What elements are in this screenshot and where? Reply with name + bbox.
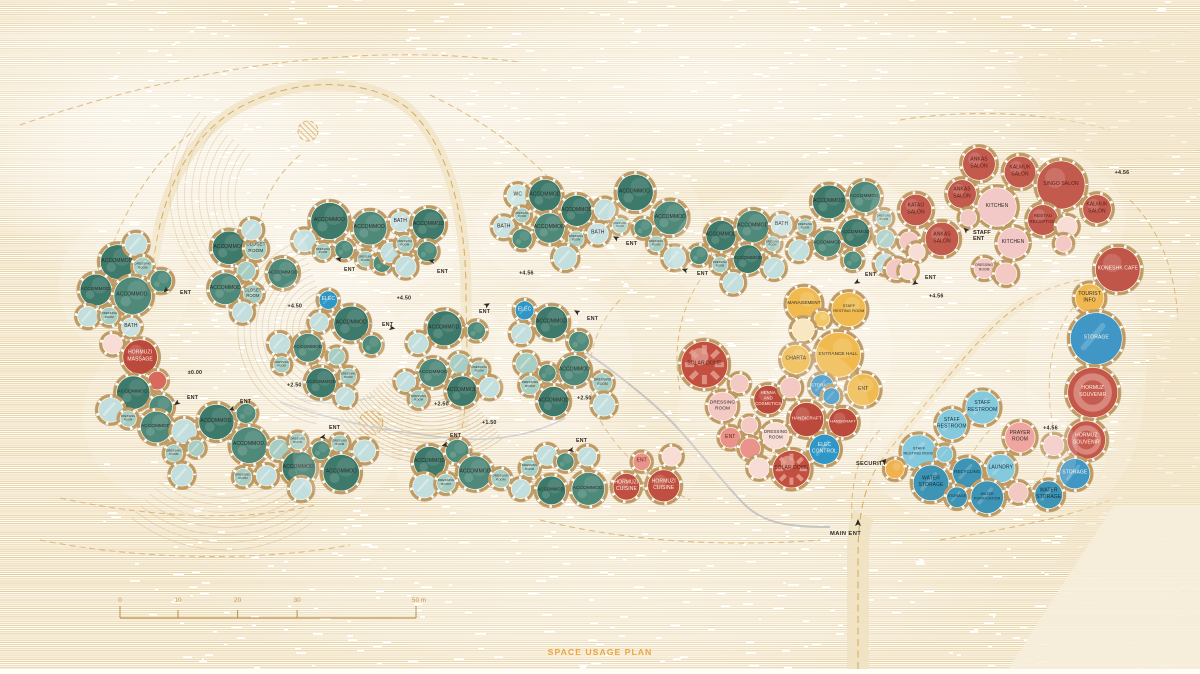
svg-text:HORMUZICUISINE: HORMUZICUISINE — [652, 479, 676, 492]
svg-text:ENT: ENT — [865, 272, 877, 278]
svg-text:SINGO SALON: SINGO SALON — [1043, 181, 1079, 187]
svg-text:PRAYERROOM: PRAYERROOM — [1010, 430, 1031, 443]
svg-text:SOLAR DOME: SOLAR DOME — [774, 465, 809, 471]
svg-text:KITCHEN: KITCHEN — [986, 203, 1009, 209]
svg-text:BATH: BATH — [497, 223, 511, 229]
svg-text:ENT: ENT — [626, 241, 638, 247]
svg-text:KITCHEN: KITCHEN — [1002, 239, 1025, 245]
svg-text:HANDICRAFT: HANDICRAFT — [792, 415, 822, 420]
svg-text:ENT: ENT — [437, 269, 449, 275]
svg-text:ACCOMMOD: ACCOMMOD — [336, 320, 367, 326]
svg-text:HORMUZSOUVENIR: HORMUZSOUVENIR — [1079, 385, 1106, 398]
svg-text:ENT: ENT — [479, 309, 491, 315]
svg-text:+4.50: +4.50 — [287, 303, 302, 309]
svg-text:ENT: ENT — [180, 290, 192, 296]
svg-text:ENT: ENT — [725, 434, 735, 440]
svg-text:SPACE USAGE PLAN: SPACE USAGE PLAN — [548, 647, 653, 657]
svg-text:+4.56: +4.56 — [519, 271, 534, 277]
svg-text:ACCOMMOD.: ACCOMMOD. — [116, 292, 149, 298]
svg-text:+4.56: +4.56 — [1043, 425, 1058, 431]
svg-text:10: 10 — [174, 597, 182, 604]
svg-text:HORMUZSOUVENIR: HORMUZSOUVENIR — [1073, 433, 1100, 446]
svg-text:20: 20 — [234, 597, 242, 604]
svg-text:+4.56: +4.56 — [1115, 170, 1130, 176]
svg-text:±0.00: ±0.00 — [188, 370, 202, 376]
svg-text:+1.50: +1.50 — [482, 420, 497, 426]
svg-text:ACCOMMOD: ACCOMMOD — [705, 232, 736, 238]
svg-text:ACCOMMOD.: ACCOMMOD. — [813, 198, 846, 204]
svg-text:ENT: ENT — [329, 425, 341, 431]
svg-text:ACCOMMOD: ACCOMMOD — [419, 369, 449, 374]
svg-text:ACCOMMOD: ACCOMMOD — [306, 379, 337, 385]
svg-text:ENT: ENT — [587, 316, 599, 322]
svg-text:+2.50: +2.50 — [287, 383, 302, 389]
svg-text:ACCOMMOD: ACCOMMOD — [737, 223, 768, 229]
svg-text:ACCOMMOD: ACCOMMOD — [414, 458, 445, 464]
svg-text:KALMUKSALON: KALMUKSALON — [1086, 202, 1108, 215]
svg-text:SECURITY: SECURITY — [856, 461, 887, 467]
svg-text:ENT: ENT — [637, 458, 647, 464]
svg-text:KONESHK CAFE: KONESHK CAFE — [1098, 266, 1139, 272]
svg-text:ANKASSALON: ANKASSALON — [933, 232, 951, 245]
svg-text:ELEC: ELEC — [518, 306, 532, 312]
svg-text:ACCOMMOD.: ACCOMMOD. — [141, 423, 172, 428]
svg-text:ACCOMMOD: ACCOMMOD — [733, 255, 763, 260]
svg-text:+2.50: +2.50 — [577, 396, 592, 402]
svg-text:+4.50: +4.50 — [397, 296, 412, 302]
svg-text:ACCOMMOD: ACCOMMOD — [213, 244, 244, 250]
svg-text:ACCOMMOD: ACCOMMOD — [561, 207, 592, 213]
svg-text:ACCOMMOD: ACCOMMOD — [538, 398, 569, 404]
svg-text:SOLAR DOME: SOLAR DOME — [687, 361, 722, 367]
svg-text:HORMUZIMASSAGE: HORMUZIMASSAGE — [127, 350, 153, 363]
svg-text:ACCOMMOD.: ACCOMMOD. — [538, 486, 565, 491]
svg-text:ACCOMMOD.: ACCOMMOD. — [200, 418, 233, 424]
svg-text:RECYCLING: RECYCLING — [954, 469, 981, 474]
svg-text:ACCOMMOD: ACCOMMOD — [813, 239, 842, 244]
svg-text:ACCOMMOD: ACCOMMOD — [559, 367, 590, 373]
svg-text:ENT: ENT — [697, 271, 709, 277]
svg-text:ANKASSALON: ANKASSALON — [953, 187, 971, 200]
svg-text:ACCOMMOD: ACCOMMOD — [326, 469, 357, 475]
svg-text:ENT: ENT — [240, 399, 252, 405]
svg-text:ACCOMMOD: ACCOMMOD — [413, 221, 444, 227]
svg-text:ACCOMMOD.: ACCOMMOD. — [81, 286, 112, 291]
svg-text:KATAOSALON: KATAOSALON — [907, 203, 925, 216]
svg-text:BATH: BATH — [591, 230, 605, 236]
svg-text:ACCOMMOD.: ACCOMMOD. — [619, 189, 652, 195]
svg-text:0: 0 — [118, 597, 122, 604]
svg-text:BATH: BATH — [124, 323, 138, 329]
svg-text:ACCOMMOD: ACCOMMOD — [293, 344, 323, 349]
svg-text:HANDICRAFT: HANDICRAFT — [830, 420, 856, 424]
svg-text:STORAGE: STORAGE — [1084, 335, 1110, 341]
svg-text:ENT: ENT — [344, 267, 356, 273]
svg-text:50 m: 50 m — [412, 597, 426, 604]
svg-text:ACCOMMOD: ACCOMMOD — [655, 214, 686, 220]
svg-text:STORAGE: STORAGE — [947, 493, 967, 498]
svg-text:CLOSETROOM: CLOSETROOM — [244, 288, 261, 298]
svg-text:+4.56: +4.56 — [929, 294, 944, 300]
svg-text:ELEC: ELEC — [322, 296, 336, 302]
svg-text:30: 30 — [294, 597, 302, 604]
svg-text:ANKASSALON: ANKASSALON — [970, 157, 988, 170]
svg-text:ACCOMMOD.: ACCOMMOD. — [233, 441, 266, 447]
svg-text:ENT: ENT — [187, 395, 199, 401]
svg-text:ACCOMMOD: ACCOMMOD — [536, 319, 567, 325]
svg-text:ACCOMMOD: ACCOMMOD — [534, 224, 565, 230]
svg-text:ACCOMMOD: ACCOMMOD — [210, 285, 241, 291]
svg-text:ENT: ENT — [450, 433, 462, 439]
svg-text:MANAGEMENT: MANAGEMENT — [787, 300, 820, 305]
svg-text:ACCOMMOD.: ACCOMMOD. — [354, 224, 387, 230]
svg-text:ACCOMMOD: ACCOMMOD — [314, 217, 345, 223]
svg-text:ACCOMMOD.: ACCOMMOD. — [117, 389, 149, 395]
svg-text:ACCOMMOD: ACCOMMOD — [459, 469, 490, 475]
svg-text:+2.50: +2.50 — [434, 401, 449, 407]
svg-text:LAUNDRY: LAUNDRY — [989, 465, 1014, 471]
svg-text:HORMUZICUISINE: HORMUZICUISINE — [614, 480, 638, 493]
svg-text:ENT: ENT — [576, 438, 588, 444]
svg-text:ACCOMMOD.: ACCOMMOD. — [428, 324, 461, 330]
svg-text:ACCOMMOD: ACCOMMOD — [268, 269, 299, 275]
svg-text:ACCOMMOD.: ACCOMMOD. — [101, 258, 134, 264]
svg-text:BATH: BATH — [394, 218, 408, 224]
svg-text:ACCOMMOD: ACCOMMOD — [841, 229, 871, 234]
svg-text:ACCOMMOD: ACCOMMOD — [529, 192, 560, 198]
svg-text:ACCOMMOD.: ACCOMMOD. — [573, 485, 604, 491]
svg-text:MAIN ENT: MAIN ENT — [830, 531, 861, 537]
svg-text:KALMUKSALON: KALMUKSALON — [1009, 165, 1031, 178]
svg-text:ENT: ENT — [925, 275, 937, 281]
svg-text:WC: WC — [514, 192, 523, 198]
svg-text:ACCOMMOD: ACCOMMOD — [446, 387, 477, 393]
